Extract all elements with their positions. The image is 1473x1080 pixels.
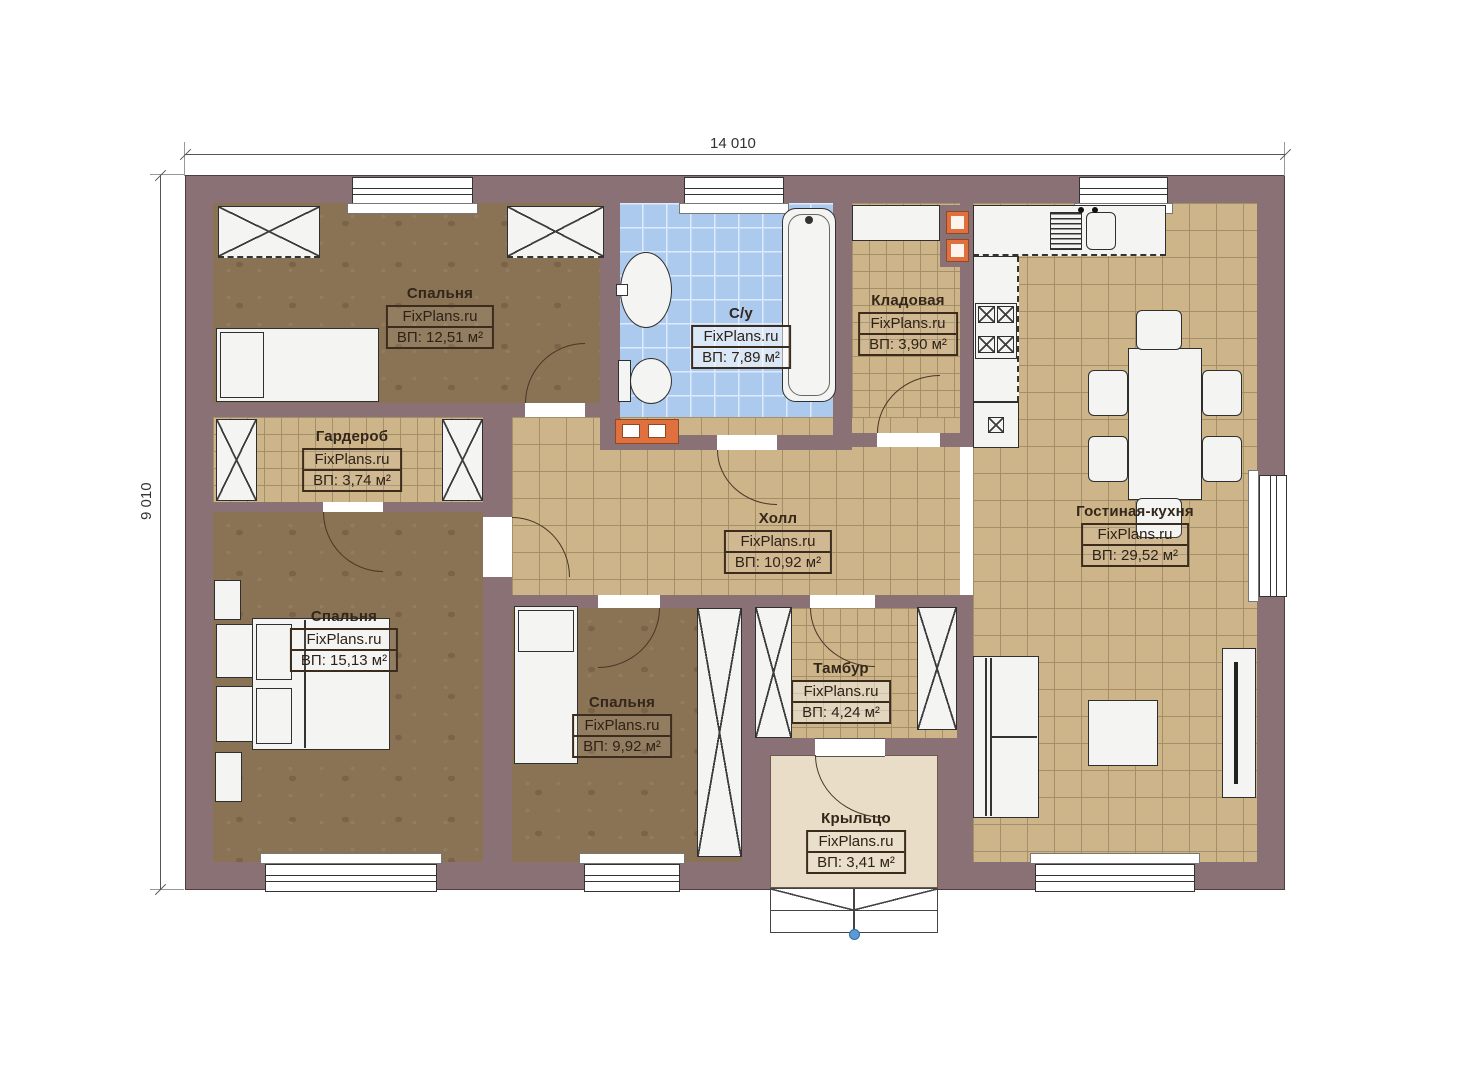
room-area-text: ВП: 29,52 м² [1083,546,1187,565]
room-area-text: ВП: 10,92 м² [726,553,830,572]
burner-icon [978,306,995,323]
window-sill [679,203,789,214]
area-box: FixPlans.ru ВП: 3,41 м² [806,830,906,874]
closet-icon [755,607,792,738]
chair-icon [1088,370,1128,416]
room-label-pantry: Кладовая FixPlans.ru ВП: 3,90 м² [858,292,958,356]
floor-transition-strip [960,447,973,595]
toilet-bowl-icon [630,358,672,404]
room-label-bedroom-3: Спальня FixPlans.ru ВП: 9,92 м² [572,694,672,758]
wall-vestibule-south [885,738,973,755]
sink-drainboard-icon [1050,212,1082,250]
window [265,864,437,892]
porch-steps [770,888,854,911]
area-box: FixPlans.ru ВП: 12,51 м² [386,305,494,349]
area-box: FixPlans.ru ВП: 7,89 м² [691,325,791,369]
faucet-icon [1078,207,1084,213]
radiator-segment [648,424,666,438]
room-label-wardrobe: Гардероб FixPlans.ru ВП: 3,74 м² [302,428,402,492]
room-area-text: ВП: 3,41 м² [808,853,904,872]
door-opening-vestibule [810,595,875,608]
porch-steps [853,888,938,911]
room-name: Гостиная-кухня [1076,503,1194,520]
door-opening-bedroom3 [598,595,660,608]
chair-icon [1202,436,1242,482]
coffee-table-icon [1088,700,1158,766]
window [684,177,784,205]
chair-icon [1202,370,1242,416]
door-opening-bedroom2 [483,517,512,577]
room-area-text: ВП: 3,74 м² [304,471,400,490]
wall-pantry-south [833,433,877,447]
wall-vestibule-south [742,738,815,755]
vent-icon [946,211,969,234]
wall-vestibule-living [957,595,973,755]
wardrobe-cabinet-icon [218,206,320,258]
sink-tap-icon [616,284,628,296]
vent-icon [946,239,969,262]
room-label-bathroom: С/у FixPlans.ru ВП: 7,89 м² [691,305,791,369]
room-name: Кладовая [858,292,958,309]
room-label-bedroom-2: Спальня FixPlans.ru ВП: 15,13 м² [290,608,398,672]
bed-pillow-icon [518,610,574,652]
room-label-hall: Холл FixPlans.ru ВП: 10,92 м² [724,510,832,574]
kitchen-sink-icon [1086,212,1116,250]
area-box: FixPlans.ru ВП: 15,13 м² [290,628,398,672]
watermark-text: FixPlans.ru [693,327,789,348]
tall-wardrobe-icon [697,608,742,857]
burner-icon [997,336,1014,353]
area-box: FixPlans.ru ВП: 10,92 м² [724,530,832,574]
room-label-bedroom-1: Спальня FixPlans.ru ВП: 12,51 м² [386,285,494,349]
area-box: FixPlans.ru ВП: 3,74 м² [302,448,402,492]
chair-icon [1088,436,1128,482]
area-box: FixPlans.ru ВП: 9,92 м² [572,714,672,758]
tv-icon [1234,662,1238,784]
cabinet-x-mark [988,417,1004,433]
room-label-porch: Крыльцо FixPlans.ru ВП: 3,41 м² [806,810,906,874]
wall-bedroom1-south [585,403,600,417]
extension-line [184,142,185,176]
nightstand-icon [216,624,253,678]
room-name: Холл [724,510,832,527]
wall-wardrobe-south [213,502,323,512]
room-name: Спальня [572,694,672,711]
room-area-text: ВП: 4,24 м² [793,703,889,722]
window [1079,177,1168,205]
room-name: Тамбур [791,660,891,677]
dresser-icon [214,580,241,620]
watermark-text: FixPlans.ru [304,450,400,471]
wall-wardrobe-south [383,502,483,512]
area-box: FixPlans.ru ВП: 29,52 м² [1081,523,1189,567]
dimension-line-left [160,175,161,890]
dresser-icon [215,752,242,802]
room-name: Спальня [290,608,398,625]
room-area-text: ВП: 15,13 м² [292,651,396,670]
wall-hall-west [483,417,512,517]
wardrobe-cabinet-icon [507,206,604,258]
closet-icon [917,607,957,730]
window [584,864,680,892]
watermark-text: FixPlans.ru [388,307,492,328]
watermark-text: FixPlans.ru [808,832,904,853]
window [1035,864,1195,892]
chair-icon [1136,310,1182,350]
floor-plan-canvas: 14 010 9 010 [0,0,1473,1080]
window-sill [579,853,685,864]
extension-line [1284,142,1285,176]
room-name: Спальня [386,285,494,302]
room-area-text: ВП: 9,92 м² [574,737,670,756]
wardrobe-cabinet-icon [216,419,257,501]
wall-porch-east [938,755,962,888]
watermark-text: FixPlans.ru [1083,525,1187,546]
room-label-vestibule: Тамбур FixPlans.ru ВП: 4,24 м² [791,660,891,724]
watermark-text: FixPlans.ru [793,682,889,703]
room-label-living-kitchen: Гостиная-кухня FixPlans.ru ВП: 29,52 м² [1076,503,1194,567]
room-area-text: ВП: 3,90 м² [860,335,956,354]
watermark-text: FixPlans.ru [292,630,396,651]
door-opening-pantry [877,433,940,447]
porch-marker-dot [849,929,860,940]
faucet-icon [1092,207,1098,213]
area-box: FixPlans.ru ВП: 4,24 м² [791,680,891,724]
area-box: FixPlans.ru ВП: 3,90 м² [858,312,958,356]
sofa-back-line [985,658,987,816]
porch-step-centerline [853,888,855,933]
dimension-height-label: 9 010 [138,482,155,520]
burner-icon [997,306,1014,323]
window [352,177,473,205]
pantry-shelf-icon [852,205,940,241]
extension-line [150,174,184,175]
door-opening-wardrobe [323,502,383,512]
room-name: Крыльцо [806,810,906,827]
watermark-text: FixPlans.ru [726,532,830,553]
watermark-text: FixPlans.ru [574,716,670,737]
bed-pillow-icon [256,688,292,744]
wall-bathroom-south [777,435,833,450]
radiator-segment [622,424,640,438]
door-opening-bedroom1 [525,403,585,417]
bed-pillow-icon [256,624,292,680]
room-area-text: ВП: 12,51 м² [388,328,492,347]
wall-hall-west [483,577,512,862]
tv-stand-icon [1222,648,1256,798]
dimension-line-top [185,154,1285,155]
wall-porch-west [742,755,770,888]
window-sill [1030,853,1200,864]
room-name: С/у [691,305,791,322]
room-area-text: ВП: 7,89 м² [693,348,789,367]
room-name: Гардероб [302,428,402,445]
window-sill [1248,470,1259,602]
sofa-cushion-line [992,736,1037,738]
wall-bedroom1-south [213,403,525,417]
nightstand-icon [216,686,253,742]
bed-pillow-icon [220,332,264,398]
extension-line [150,889,184,890]
window [1259,475,1287,597]
window-sill [347,203,478,214]
dimension-width-label: 14 010 [710,135,756,152]
burner-icon [978,336,995,353]
wardrobe-cabinet-icon [442,419,483,501]
window-sill [260,853,442,864]
bath-faucet-icon [805,216,813,224]
watermark-text: FixPlans.ru [860,314,956,335]
dining-table-icon [1128,348,1202,500]
door-opening-bathroom [717,435,777,450]
bathtub-inner [788,214,830,396]
